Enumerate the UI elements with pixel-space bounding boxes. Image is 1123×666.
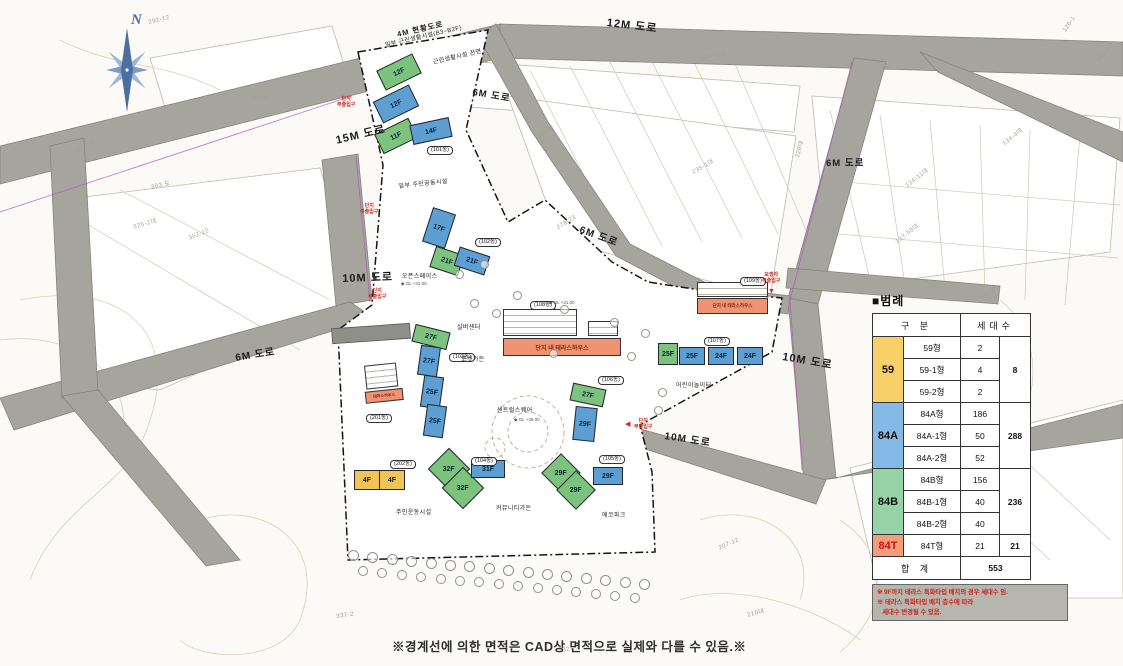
tree-icon <box>397 570 407 580</box>
entrance-label: 단지부출입구 <box>337 96 355 108</box>
building-floor-label: 17F <box>432 223 446 233</box>
legend-total-value: 553 <box>961 557 1031 580</box>
tree-icon <box>658 388 667 397</box>
legend-group-total: 8 <box>1000 337 1031 403</box>
building-29F: 29F <box>572 406 597 442</box>
dong-label: (201동) <box>366 414 392 423</box>
entrance-label-line: 부출입구 <box>762 278 780 284</box>
facility-label: 어린이놀이터 <box>676 380 712 389</box>
tree-icon <box>455 270 464 279</box>
terrace-floor-stack <box>364 362 398 389</box>
legend-col-header: 세대수 <box>961 314 1031 337</box>
building-floor-label: 21F <box>440 256 454 266</box>
tree-icon <box>480 260 489 269</box>
legend-type-count: 50 <box>961 425 1000 447</box>
building-floor-label: 25F <box>426 388 439 397</box>
legend-note-line: 세대수 변경될 수 있음. <box>877 608 1063 618</box>
tree-icon <box>426 558 437 569</box>
entrance-arrow-icon: ◀ <box>625 421 630 428</box>
legend-type-count: 40 <box>961 491 1000 513</box>
tree-icon <box>348 550 359 561</box>
facility-label: 실버센터 <box>457 322 481 331</box>
building-floor-label: 27F <box>424 332 437 342</box>
building-floor-label: 32F <box>457 485 469 492</box>
gl-elevation-label: ◆ GL +31.00 <box>401 281 427 287</box>
entrance-label: 보행자부출입구 <box>762 272 780 284</box>
legend-type-name: 84B형 <box>904 469 961 491</box>
tree-icon <box>387 554 398 565</box>
terrace-unit-band: 단지 내 테라스하우스 <box>697 298 768 314</box>
building-floor-label: 24F <box>715 353 727 360</box>
tree-icon <box>639 579 650 590</box>
legend-type-name: 84B-1형 <box>904 491 961 513</box>
building-floor-label: 4F <box>363 477 371 484</box>
tree-icon <box>533 583 543 593</box>
entrance-label-line: 부출입구 <box>337 102 355 108</box>
building-floor-label: 25F <box>429 417 442 426</box>
building-25F: 25F <box>658 343 678 365</box>
tree-icon <box>416 572 426 582</box>
legend-note-line: ※ 9F까지 테라스 특화타입 배치의 경우 세대수 임. <box>877 588 1063 598</box>
building-floor-label: 27F <box>423 357 436 366</box>
legend-type-count: 52 <box>961 447 1000 469</box>
legend-type-name: 84A형 <box>904 403 961 425</box>
facility-label: 센트럴스퀘어 <box>497 405 533 414</box>
tree-icon <box>560 305 569 314</box>
legend-type-name: 84A-1형 <box>904 425 961 447</box>
building-24F: 24F <box>737 347 763 365</box>
tree-icon <box>610 318 619 327</box>
tree-icon <box>542 569 553 580</box>
dong-label: (106동) <box>598 376 624 385</box>
building-floor-label: 24F <box>744 353 756 360</box>
compass-n-label: N <box>130 12 143 28</box>
bottom-note: ※경계선에 의한 면적은 CAD상 면적으로 실제와 다를 수 있음.※ <box>392 636 746 655</box>
dong-label: (101동) <box>427 146 453 155</box>
legend-table: 구 분세대수5959형2859-1형459-2형284A84A형18628884… <box>872 313 1031 580</box>
tree-icon <box>445 560 456 571</box>
dong-label: (104동) <box>471 457 497 466</box>
legend-total-label: 합 계 <box>873 557 961 580</box>
building-27F: 27F <box>417 345 441 377</box>
legend-group-code: 59 <box>873 337 904 403</box>
legend-type-count: 21 <box>961 535 1000 557</box>
building-floor-label: 29F <box>579 420 592 428</box>
dong-label: (102동) <box>475 238 501 247</box>
entrance-label-line: 부출입구 <box>634 424 652 430</box>
gl-elevation-label: ◆ GL +46.00 <box>514 417 540 423</box>
legend-type-count: 40 <box>961 513 1000 535</box>
legend-type-name: 84B-2형 <box>904 513 961 535</box>
tree-icon <box>654 406 663 415</box>
building-floor-label: 4F <box>388 477 396 484</box>
tree-icon <box>470 299 479 308</box>
tree-icon <box>581 573 592 584</box>
building-floor-label: 25F <box>662 351 674 358</box>
legend-type-count: 4 <box>961 359 1000 381</box>
legend-note-line: ※ 테라스 특화타입 배치 층수에 따라 <box>877 598 1063 608</box>
building-floor-label: 25F <box>686 353 698 360</box>
legend-type-name: 84T형 <box>904 535 961 557</box>
legend-title: ■범례 <box>872 292 1068 309</box>
tree-icon <box>358 566 368 576</box>
legend-type-name: 59-2형 <box>904 381 961 403</box>
legend-type-count: 2 <box>961 337 1000 359</box>
building-floor-label: 14F <box>424 126 437 135</box>
legend-type-name: 59-1형 <box>904 359 961 381</box>
tree-icon <box>455 576 465 586</box>
building-25F: 25F <box>679 347 705 365</box>
entrance-label: 단지부출입구 <box>368 288 386 300</box>
tree-icon <box>591 589 601 599</box>
building-floor-label: 29F <box>570 487 582 494</box>
building-floor-label: 27F <box>581 390 594 399</box>
entrance-arrow-icon: ▼ <box>768 288 775 295</box>
dong-label: (105동) <box>599 455 625 464</box>
building-floor-label: 32F <box>443 466 455 473</box>
facility-label: 에코파크 <box>602 510 626 519</box>
building-4F: 4F <box>379 470 405 490</box>
tree-icon <box>641 329 650 338</box>
road-label: 6M 도로 <box>826 155 864 169</box>
tree-icon <box>610 591 620 601</box>
building-floor-label: 21F <box>465 256 479 266</box>
tree-icon <box>627 352 636 361</box>
building-floor-label: 31F <box>482 466 494 473</box>
entrance-label: 단지주출입구 <box>360 203 378 215</box>
legend-type-name: 59형 <box>904 337 961 359</box>
legend-group-total: 236 <box>1000 469 1031 535</box>
tree-icon <box>552 585 562 595</box>
tree-icon <box>436 574 446 584</box>
tree-icon <box>492 309 501 318</box>
building-4F: 4F <box>354 470 380 490</box>
legend-type-count: 156 <box>961 469 1000 491</box>
legend-col-header: 구 분 <box>873 314 961 337</box>
tree-icon <box>600 575 611 586</box>
legend-group-code: 84B <box>873 469 904 535</box>
legend-type-count: 186 <box>961 403 1000 425</box>
facility-label: 포켓가든 <box>461 354 485 363</box>
entrance-label: 단지부출입구 <box>634 418 652 430</box>
entrance-label-line: 부출입구 <box>368 294 386 300</box>
legend-type-name: 84A-2형 <box>904 447 961 469</box>
legend-panel: ■범례 구 분세대수5959형2859-1형459-2형284A84A형1862… <box>872 292 1068 621</box>
legend-group-total: 21 <box>1000 535 1031 557</box>
legend-group-total: 288 <box>1000 403 1031 469</box>
building-24F: 24F <box>708 347 734 365</box>
road-label: 10M 도로 <box>342 268 393 286</box>
tree-icon <box>549 349 558 358</box>
building-floor-label: 11F <box>389 130 403 141</box>
terrace-unit-band: 단지 내 테라스하우스 <box>503 338 621 356</box>
facility-label: 오픈스페이스 <box>402 271 438 280</box>
tree-icon <box>630 593 640 603</box>
entrance-label-line: 주출입구 <box>360 209 378 215</box>
legend-type-count: 2 <box>961 381 1000 403</box>
tree-icon <box>513 291 522 300</box>
tree-icon <box>620 577 631 588</box>
facility-label: 주민운동시설 <box>396 507 432 516</box>
dong-label: (107동) <box>704 337 730 346</box>
building-floor-label: 12F <box>389 98 403 110</box>
legend-notes: ※ 9F까지 테라스 특화타입 배치의 경우 세대수 임.※ 테라스 특화타입 … <box>872 584 1068 621</box>
facility-label: 커뮤니티가든 <box>496 503 532 512</box>
building-29F: 29F <box>593 467 623 485</box>
legend-group-code: 84T <box>873 535 904 557</box>
legend-group-code: 84A <box>873 403 904 469</box>
tree-icon <box>406 556 417 567</box>
site-plan-canvas: N 12F12F11F14F17F21F21F27F27F25F25F32F32… <box>0 0 1123 666</box>
tree-icon <box>523 567 534 578</box>
dong-label: (202동) <box>390 460 416 469</box>
building-floor-label: 29F <box>602 473 614 480</box>
building-floor-label: 12F <box>392 66 406 78</box>
building-floor-label: 29F <box>555 470 567 477</box>
